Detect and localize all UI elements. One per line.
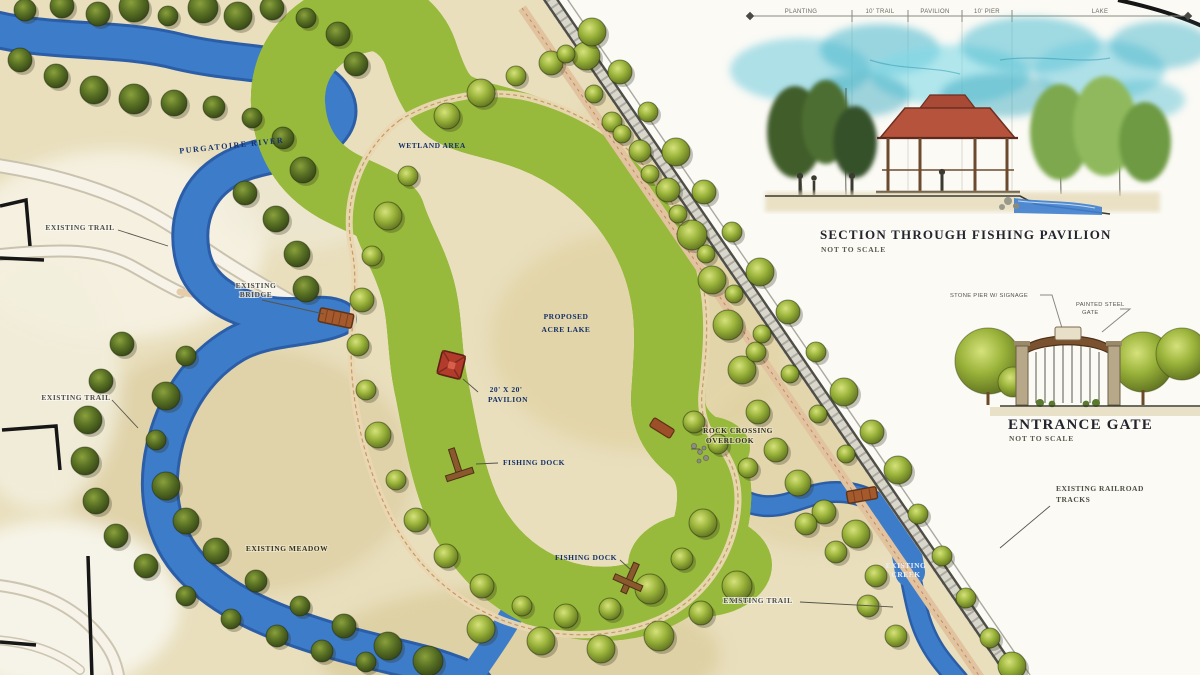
tree-icon (795, 513, 817, 535)
tree-icon (692, 180, 716, 204)
dim-label-lake: LAKE (1092, 9, 1109, 15)
tree-icon (578, 18, 606, 46)
label-pavilion-1: 20' X 20' (490, 385, 523, 394)
tree-icon (746, 258, 774, 286)
tree-icon (158, 6, 178, 26)
label-pavilion-2: PAVILION (488, 395, 528, 404)
tree-icon (413, 646, 443, 675)
tree-icon (980, 628, 1000, 648)
tree-icon (344, 52, 368, 76)
tree-icon (290, 596, 310, 616)
label-rock-crossing-1: ROCK CROSSING (703, 426, 773, 435)
tree-icon (809, 405, 827, 423)
label-existing-bridge-1: EXISTING (236, 281, 277, 290)
tree-icon (825, 541, 847, 563)
tree-icon (753, 325, 771, 343)
tree-icon (290, 157, 316, 183)
gate-callout-right-2: GATE (1082, 310, 1099, 316)
label-railroad-1: EXISTING RAILROAD (1056, 484, 1144, 493)
label-existing-meadow: EXISTING MEADOW (246, 544, 328, 553)
tree-icon (356, 380, 376, 400)
tree-icon (74, 406, 102, 434)
tree-icon (293, 276, 319, 302)
tree-icon (284, 241, 310, 267)
tree-icon (176, 346, 196, 366)
tree-icon (104, 524, 128, 548)
tree-icon (152, 382, 180, 410)
park-master-plan: PURGATOIRE RIVER EXISTING TRAIL EXISTING… (0, 0, 1200, 675)
tree-icon (806, 342, 826, 362)
label-wetland: WETLAND AREA (398, 141, 466, 150)
tree-icon (110, 332, 134, 356)
site-plan-canvas: PURGATOIRE RIVER EXISTING TRAIL EXISTING… (0, 0, 1200, 675)
tree-icon (669, 205, 687, 223)
tree-icon (8, 48, 32, 72)
gate-sign (1055, 327, 1081, 340)
tree-icon (404, 508, 428, 532)
tree-icon (119, 84, 149, 114)
section-ground (765, 192, 1160, 215)
tree-icon (781, 365, 799, 383)
tree-icon (885, 625, 907, 647)
tree-icon (698, 266, 726, 294)
tree-icon (152, 472, 180, 500)
tree-icon (173, 508, 199, 534)
tree-icon (860, 420, 884, 444)
tree-icon (764, 438, 788, 462)
gate-inset-subtitle: NOT TO SCALE (1009, 434, 1074, 443)
tree-icon (242, 108, 262, 128)
tree-icon (527, 627, 555, 655)
tree-icon (713, 310, 743, 340)
tree-icon (263, 206, 289, 232)
tree-icon (557, 45, 575, 63)
label-existing-creek-2: CREEK (891, 570, 920, 579)
gate-callout-right-1: PAINTED STEEL (1076, 302, 1125, 308)
section-inset-subtitle: NOT TO SCALE (821, 245, 886, 254)
tree-icon (89, 369, 113, 393)
tree-icon (434, 544, 458, 568)
tree-icon (554, 604, 578, 628)
label-lake-2: ACRE LAKE (542, 325, 591, 334)
tree-icon (233, 181, 257, 205)
tree-icon (203, 538, 229, 564)
tree-icon (365, 422, 391, 448)
tree-icon (512, 596, 532, 616)
tree-icon (83, 488, 109, 514)
tree-icon (662, 138, 690, 166)
tree-icon (689, 509, 717, 537)
gate-inset-title: ENTRANCE GATE (1008, 417, 1153, 433)
tree-icon (776, 300, 800, 324)
tree-icon (134, 554, 158, 578)
tree-icon (161, 90, 187, 116)
dim-label-pier: 10' PIER (974, 9, 1000, 15)
tree-icon (362, 246, 382, 266)
dim-label-pavilion: PAVILION (920, 9, 949, 15)
tree-icon (350, 288, 374, 312)
label-existing-trail-2: EXISTING TRAIL (41, 393, 110, 402)
tree-icon (398, 166, 418, 186)
tree-icon (908, 504, 928, 524)
tree-icon (884, 456, 912, 484)
tree-icon (644, 621, 674, 651)
tree-icon (613, 125, 631, 143)
tree-icon (638, 102, 658, 122)
tree-icon (311, 640, 333, 662)
tree-icon (386, 470, 406, 490)
tree-icon (599, 598, 621, 620)
tree-icon (998, 652, 1026, 675)
tree-icon (608, 60, 632, 84)
tree-icon (146, 430, 166, 450)
tree-icon (629, 140, 651, 162)
tree-icon (683, 411, 705, 433)
tree-icon (374, 632, 402, 660)
tree-icon (332, 614, 356, 638)
dim-label-trail: 10' TRAIL (865, 9, 894, 15)
tree-icon (746, 400, 770, 424)
tree-icon (347, 334, 369, 356)
label-fishing-dock-2: FISHING DOCK (555, 553, 617, 562)
label-existing-bridge-2: BRIDGE (240, 290, 273, 299)
tree-icon (80, 76, 108, 104)
tree-icon (86, 2, 110, 26)
tree-icon (785, 470, 811, 496)
tree-icon (956, 588, 976, 608)
gate-callout-left: STONE PIER W/ SIGNAGE (950, 293, 1028, 299)
tree-icon (221, 609, 241, 629)
tree-icon (245, 570, 267, 592)
label-existing-trail-3: EXISTING TRAIL (723, 596, 792, 605)
tree-icon (326, 22, 350, 46)
tree-icon (44, 64, 68, 88)
tree-icon (837, 445, 855, 463)
tree-icon (641, 165, 659, 183)
tree-icon (470, 574, 494, 598)
tree-icon (14, 0, 36, 21)
tree-icon (266, 625, 288, 647)
tree-icon (738, 458, 758, 478)
dim-label-planting: PLANTING (785, 9, 817, 15)
tree-icon (374, 202, 402, 230)
tree-icon (842, 520, 870, 548)
label-lake-1: PROPOSED (544, 312, 589, 321)
tree-icon (260, 0, 284, 20)
label-existing-creek-1: EXISTING (886, 561, 927, 570)
tree-icon (722, 222, 742, 242)
tree-icon (296, 8, 316, 28)
tree-icon (585, 85, 603, 103)
tree-icon (176, 586, 196, 606)
tree-icon (506, 66, 526, 86)
section-inset-title: SECTION THROUGH FISHING PAVILION (820, 227, 1112, 242)
tree-icon (865, 565, 887, 587)
tree-icon (697, 245, 715, 263)
tree-icon (203, 96, 225, 118)
tree-icon (830, 378, 858, 406)
tree-icon (725, 285, 743, 303)
label-existing-trail-1: EXISTING TRAIL (45, 223, 114, 232)
tree-icon (467, 79, 495, 107)
label-fishing-dock-1: FISHING DOCK (503, 458, 565, 467)
tree-icon (671, 548, 693, 570)
tree-icon (356, 652, 376, 672)
label-rock-crossing-2: OVERLOOK (706, 436, 754, 445)
tree-icon (71, 447, 99, 475)
label-railroad-2: TRACKS (1056, 495, 1090, 504)
tree-icon (587, 635, 615, 663)
tree-icon (689, 601, 713, 625)
tree-icon (932, 546, 952, 566)
tree-icon (224, 2, 252, 30)
tree-icon (467, 615, 495, 643)
tree-icon (434, 103, 460, 129)
